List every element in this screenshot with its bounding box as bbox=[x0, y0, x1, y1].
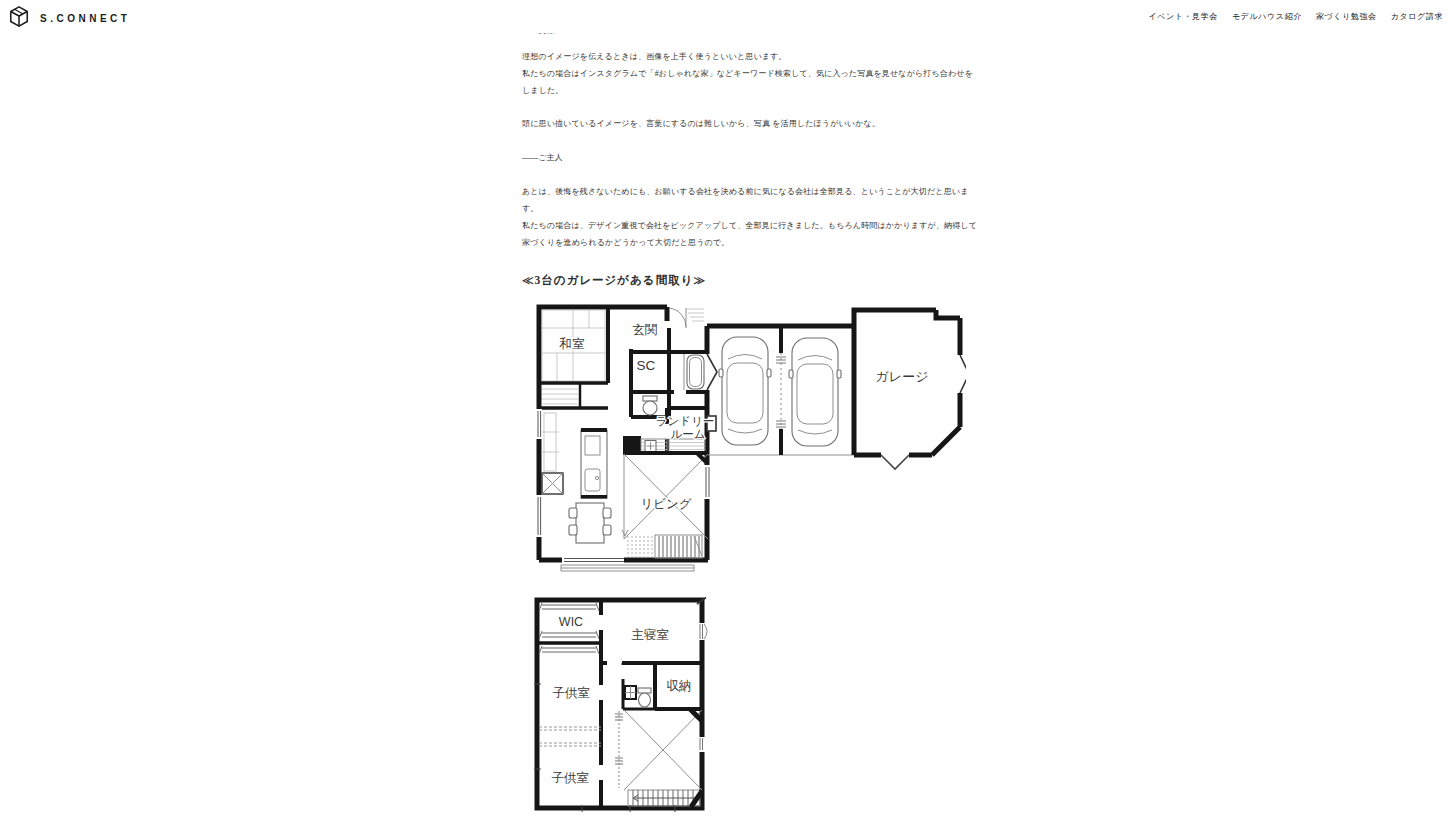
section-heading: ≪3台のガレージがある間取り≫ bbox=[522, 271, 706, 289]
article-line: 私たちの場合はインスタグラムで「#おしゃれな家」などキーワード検索して、気に入っ… bbox=[522, 65, 980, 99]
room-label-storage: 収納 bbox=[667, 679, 692, 693]
room-label-wic: WIC bbox=[559, 615, 583, 629]
room-label-kids-room-1: 子供室 bbox=[552, 686, 590, 700]
room-label-kids-room-2: 子供室 bbox=[551, 771, 589, 785]
article-line: あとは、後悔を残さないためにも、お願いする会社を決める前に気になる会社は全部見る… bbox=[522, 183, 980, 217]
room-label-genkan: 玄関 bbox=[633, 323, 658, 337]
room-label-shoes-closet: SC bbox=[637, 358, 656, 373]
room-label-master-bedroom: 主寝室 bbox=[631, 628, 669, 642]
floor-plan-2f-image: WIC 主寝室 子供室 収納 子供室 bbox=[534, 597, 712, 817]
floor-plan-1f-image: 和室 玄関 SC ランドリー ルーム リビング ガレージ bbox=[536, 297, 966, 577]
room-label-laundry-1: ランドリー bbox=[656, 415, 715, 427]
article-line: 理想のイメージを伝えるときは、画像を上手く使うといいと思います。 bbox=[522, 48, 980, 65]
nav-item-model-house[interactable]: モデルハウス紹介 bbox=[1232, 11, 1302, 22]
nav-item-events[interactable]: イベント・見学会 bbox=[1148, 11, 1218, 22]
main-nav: イベント・見学会 モデルハウス紹介 家づくり勉強会 カタログ請求 bbox=[1148, 0, 1443, 33]
room-label-garage: ガレージ bbox=[876, 369, 929, 384]
interview-tag-husband: ――ご主人 bbox=[522, 149, 980, 166]
logo-cube-icon bbox=[8, 5, 30, 32]
room-label-laundry-2: ルーム bbox=[670, 428, 705, 440]
site-logo[interactable]: S.CONNECT bbox=[8, 5, 130, 32]
article-line: 頭に思い描いているイメージを、言葉にするのは難しいから、写真 を活用したほうがい… bbox=[522, 115, 980, 132]
paragraph-1: 理想のイメージを伝えるときは、画像を上手く使うといいと思います。 私たちの場合は… bbox=[522, 48, 980, 99]
room-label-washitsu: 和室 bbox=[559, 337, 586, 351]
site-header: S.CONNECT イベント・見学会 モデルハウス紹介 家づくり勉強会 カタログ… bbox=[0, 0, 1449, 33]
nav-item-study[interactable]: 家づくり勉強会 bbox=[1316, 11, 1377, 22]
page: ――奥様 理想のイメージを伝えるときは、画像を上手く使うといいと思います。 私た… bbox=[0, 0, 1449, 835]
room-label-living: リビング bbox=[640, 497, 691, 511]
article-line: 私たちの場合は、デザイン重視で会社をピックアップして、全部見に行きました。もちろ… bbox=[522, 217, 980, 251]
paragraph-3: あとは、後悔を残さないためにも、お願いする会社を決める前に気になる会社は全部見る… bbox=[522, 183, 980, 251]
paragraph-2: 頭に思い描いているイメージを、言葉にするのは難しいから、写真 を活用したほうがい… bbox=[522, 115, 980, 132]
nav-item-catalog[interactable]: カタログ請求 bbox=[1391, 11, 1443, 22]
logo-text: S.CONNECT bbox=[40, 13, 130, 24]
